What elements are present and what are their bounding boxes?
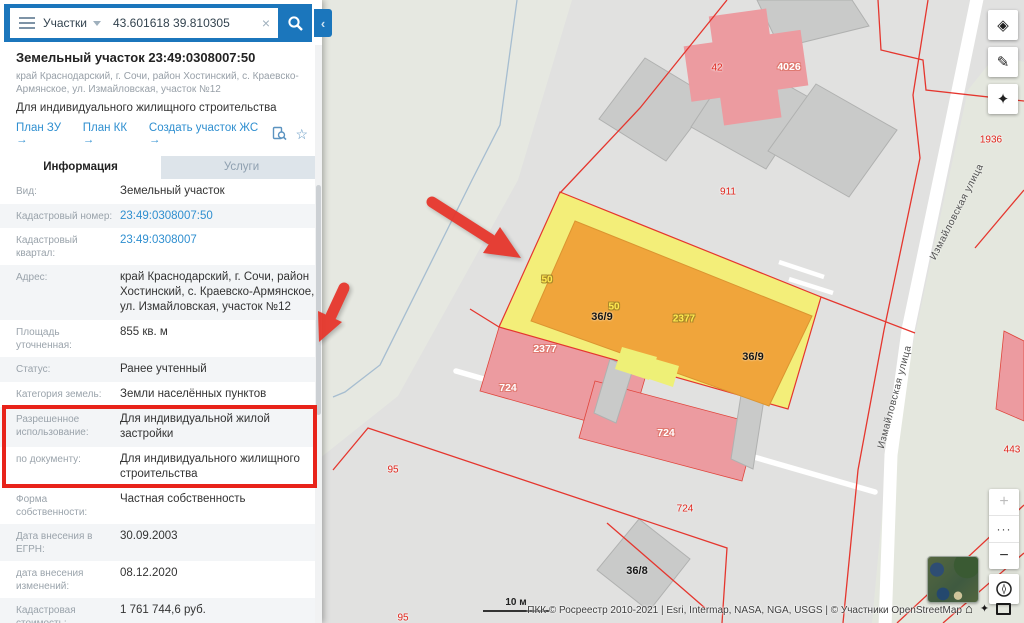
parcel-label-724: 724 [677,504,694,515]
page-title: Земельный участок 23:49:0308007:50 [16,50,308,66]
search-bar: Участки × [4,4,312,42]
row-label: Категория земель: [16,387,114,402]
parcel-label-1936: 1936 [980,135,1002,146]
parcel-label-724: 724 [657,427,675,439]
row-label: Кадастровый номер: [16,209,114,224]
position-button[interactable]: ✦ [988,84,1018,114]
row-label: Дата внесения в ЕГРН: [16,529,114,556]
cadastral-number-link[interactable]: 23:49:0308007:50 [120,209,213,224]
action-links: План ЗУ → План КК → Создать участок ЖС →… [16,122,308,146]
collapse-panel-button[interactable]: ‹ [314,9,332,37]
table-row: по документу: Для индивидуального жилищн… [0,447,322,487]
house-label-36-9: 36/9 [742,351,763,363]
layers-icon: ◈ [997,16,1009,34]
row-value: Для индивидуального жилищного строительс… [120,452,316,482]
row-value: край Краснодарский, г. Сочи, район Хости… [120,270,316,315]
row-value: Земельный участок [120,184,225,199]
search-category-select[interactable]: Участки [43,16,87,30]
parcel-label-2377: 2377 [533,343,556,355]
info-table: Вид: Земельный участок Кадастровый номер… [0,179,322,623]
table-row: Кадастровый номер: 23:49:0308007:50 [0,204,322,229]
menu-icon[interactable] [19,14,35,32]
measure-button[interactable]: ✎ [988,47,1018,77]
position-icon: ✦ [997,90,1010,108]
table-row: Площадь уточненная: 855 кв. м [0,320,322,357]
parcel-address-subtitle: край Краснодарский, г. Сочи, район Хости… [16,70,308,96]
layers-button[interactable]: ◈ [988,10,1018,40]
table-row: дата внесения изменений: 08.12.2020 [0,561,322,598]
parcel-label-95: 95 [387,465,398,476]
row-value: Земли населённых пунктов [120,387,266,402]
info-sidebar: Земельный участок 23:49:0308007:50 край … [0,0,322,623]
compass-icon [995,580,1013,598]
parcel-label-42: 42 [711,63,722,74]
parcel-label-50: 50 [541,275,552,286]
fullscreen-icon[interactable] [996,603,1011,615]
tab-services[interactable]: Услуги [161,156,322,179]
parcel-label-911: 911 [720,187,736,198]
table-row: Вид: Земельный участок [0,179,322,204]
zoom-panel: + ··· − [989,489,1019,569]
row-label: Вид: [16,184,114,199]
table-row: Дата внесения в ЕГРН: 30.09.2003 [0,524,322,561]
search-input[interactable] [111,15,254,31]
parcel-label-443: 443 [1004,445,1021,456]
row-value: Для индивидуальной жилой застройки [120,412,316,442]
table-row: Адрес: край Краснодарский, г. Сочи, райо… [0,265,322,320]
tab-bar: Информация Услуги [0,156,322,179]
clear-icon[interactable]: × [254,15,278,31]
highlighted-rows: Разрешенное использование: Для индивидуа… [0,407,322,487]
row-label: Кадастровый квартал: [16,233,114,260]
zoom-out-button[interactable]: − [989,542,1019,569]
parcel-label-2377: 2377 [673,314,695,325]
marker-icon[interactable]: ✦ [980,602,989,616]
row-value: 855 кв. м [120,325,168,352]
chevron-down-icon[interactable] [93,21,101,26]
link-plan-zu[interactable]: План ЗУ → [16,122,69,146]
doc-search-icon[interactable] [272,126,287,141]
table-row: Статус: Ранее учтенный [0,357,322,382]
row-label: Адрес: [16,270,114,315]
house-label-36-9: 36/9 [591,311,612,323]
row-value: Ранее учтенный [120,362,207,377]
bottom-toolbar: ⌂ ✦ [965,602,1011,616]
house-label-36-8: 36/8 [626,565,647,577]
building-label-4026: 4026 [777,61,800,73]
table-row: Кадастровая стоимость: 1 761 744,6 руб. [0,598,322,623]
row-value: 08.12.2020 [120,566,178,593]
favorite-star-icon[interactable]: ☆ [295,127,308,141]
zoom-in-button[interactable]: + [989,489,1019,515]
parcel-label-95: 95 [397,613,408,623]
table-row: Категория земель: Земли населённых пункт… [0,382,322,407]
row-label: Форма собственности: [16,492,114,519]
search-button[interactable] [280,8,310,38]
table-row: Кадастровый квартал: 23:49:0308007 [0,228,322,265]
row-value: 30.09.2003 [120,529,178,556]
scrollbar-thumb[interactable] [316,185,321,415]
row-label: дата внесения изменений: [16,566,114,593]
measure-icon: ✎ [997,53,1010,71]
more-button[interactable]: ··· [989,515,1019,542]
link-create-parcel[interactable]: Создать участок ЖС → [149,122,259,146]
tab-information[interactable]: Информация [0,156,161,179]
map-attribution: ПКК © Росреестр 2010-2021 | Esri, Interm… [527,605,962,616]
row-value: Частная собственность [120,492,245,519]
search-box: Участки × [10,8,278,38]
sidebar-scrollbar[interactable] [315,45,322,623]
cadastral-quarter-link[interactable]: 23:49:0308007 [120,233,197,260]
table-row: Разрешенное использование: Для индивидуа… [0,407,322,447]
basemap-thumbnail[interactable] [927,556,979,603]
home-icon[interactable]: ⌂ [965,602,973,616]
row-label: по документу: [16,452,114,482]
parcel-label-724: 724 [499,382,517,394]
row-value: 1 761 744,6 руб. [120,603,206,623]
compass-button[interactable] [989,574,1019,604]
row-label: Разрешенное использование: [16,412,114,442]
table-row: Форма собственности: Частная собственнос… [0,487,322,524]
parcel-usage-subtitle: Для индивидуального жилищного строительс… [16,102,308,114]
search-icon [287,15,304,32]
row-label: Площадь уточненная: [16,325,114,352]
link-plan-kk[interactable]: План КК → [83,122,135,146]
row-label: Кадастровая стоимость: [16,603,114,623]
app-window: 42 4026 911 1936 Измайловская улица Изма… [0,0,1024,623]
row-label: Статус: [16,362,114,377]
